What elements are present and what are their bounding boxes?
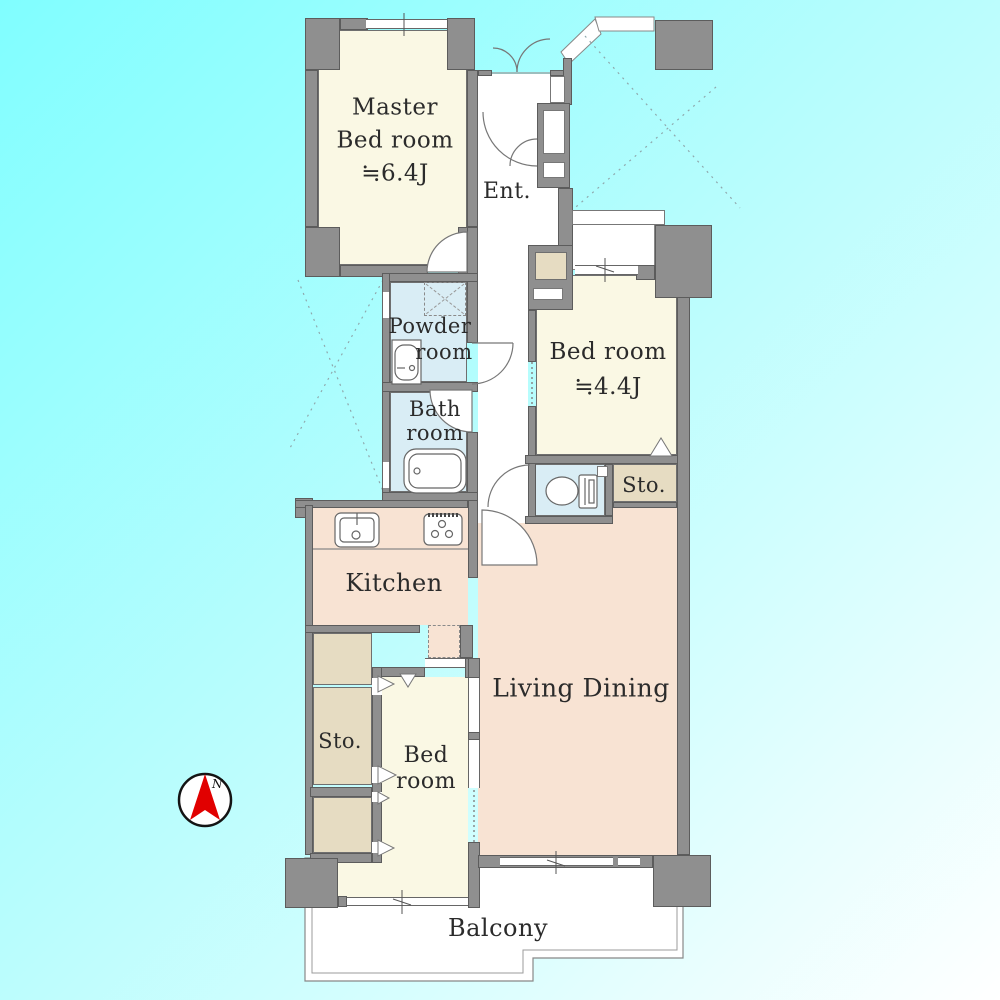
glass-partition: [468, 740, 480, 788]
sliding-door-section: [618, 857, 640, 866]
wall-segment: [468, 658, 480, 678]
window: [382, 462, 390, 488]
wall-segment: [340, 18, 368, 30]
wall-segment: [285, 858, 338, 908]
closet-opening: [372, 767, 382, 783]
label-entrance: Ent.: [483, 179, 531, 205]
wall-segment: [447, 18, 475, 70]
window: [347, 897, 468, 906]
wall-segment: [467, 70, 478, 227]
wall-segment: [310, 787, 372, 797]
closet-row-bottom: [313, 797, 372, 853]
wall-segment: [305, 18, 340, 70]
room-toilet: [533, 464, 605, 516]
window: [500, 857, 613, 866]
closet-opening: [372, 792, 382, 802]
wall-segment: [613, 502, 677, 508]
wall-segment: [525, 455, 689, 464]
wall-segment: [460, 625, 473, 658]
floor-plan-canvas: N Master Bed room ≒6.4J Ent. Powder room…: [0, 0, 1000, 1000]
alcove-top-band: [572, 210, 665, 225]
shoe-cabinet-shelf: [543, 110, 565, 154]
wall-segment: [305, 227, 340, 277]
wall-segment: [655, 20, 713, 70]
label-line: ≒4.4J: [549, 370, 666, 405]
wall-white-section: [550, 76, 565, 103]
wall-segment: [382, 382, 478, 392]
label-line: Bath: [406, 397, 463, 421]
wall-segment: [653, 855, 711, 907]
label-line: Master: [336, 92, 453, 125]
wall-segment: [305, 625, 420, 633]
wall-segment: [382, 273, 478, 282]
sliding-door: [425, 658, 465, 668]
glass-partition: [468, 678, 480, 732]
label-bedroom-3: Bed room: [396, 743, 456, 795]
label-line: ≒6.4J: [336, 158, 453, 191]
label-line: Bed room: [336, 125, 453, 158]
wall-segment: [372, 667, 382, 863]
label-storage-2: Sto.: [318, 729, 362, 753]
washing-machine-area: [424, 282, 466, 316]
wall-segment: [528, 310, 536, 362]
label-kitchen: Kitchen: [345, 570, 442, 596]
wall-segment: [468, 842, 480, 908]
entrance-door-leaf: [517, 39, 550, 72]
label-balcony: Balcony: [448, 915, 548, 941]
wall-segment: [525, 516, 613, 524]
toilet-corner-box: [597, 466, 608, 477]
wall-segment: [468, 500, 478, 578]
closet-row-top: [313, 633, 372, 685]
counter-box: [533, 288, 563, 300]
common-corridor-band: [561, 17, 654, 64]
closet-opening: [372, 842, 382, 853]
label-line: Bed: [396, 743, 456, 769]
closet-opening: [372, 678, 382, 695]
label-powder-room-line2: room: [415, 340, 472, 364]
hallway: [478, 230, 528, 523]
shoe-cabinet-shelf: [543, 162, 565, 178]
compass-icon: N: [179, 774, 231, 826]
entry-storage-nook: [535, 252, 567, 280]
wall-segment: [655, 225, 712, 298]
label-master-bedroom: Master Bed room ≒6.4J: [336, 92, 453, 191]
label-living-dining: Living Dining: [492, 675, 670, 702]
label-storage-1: Sto.: [622, 473, 666, 497]
label-powder-room-line1: Powder: [389, 314, 472, 338]
entrance-door-leaf: [493, 48, 517, 72]
room-bedroom-3-lower: [338, 863, 467, 898]
entry-alcove: [572, 222, 655, 270]
wall-segment: [295, 500, 468, 508]
room-kitchen: [313, 508, 468, 625]
living-dining-upper-strip: [613, 508, 677, 525]
wall-segment: [636, 265, 655, 280]
refrigerator-area: [428, 625, 460, 658]
wall-segment: [305, 70, 318, 227]
window: [575, 265, 638, 275]
wall-segment: [305, 505, 313, 855]
wall-segment: [558, 188, 573, 247]
window: [366, 19, 447, 29]
label-line: room: [396, 769, 456, 795]
label-bedroom-2: Bed room ≒4.4J: [549, 335, 666, 405]
label-line: room: [406, 421, 463, 445]
wall-segment: [677, 295, 690, 855]
label-line: Bed room: [549, 335, 666, 370]
north-label: N: [211, 777, 223, 791]
wall-segment: [468, 732, 480, 740]
label-bath-room: Bath room: [406, 397, 463, 445]
wall-segment: [478, 70, 492, 76]
wall-segment: [338, 896, 347, 907]
